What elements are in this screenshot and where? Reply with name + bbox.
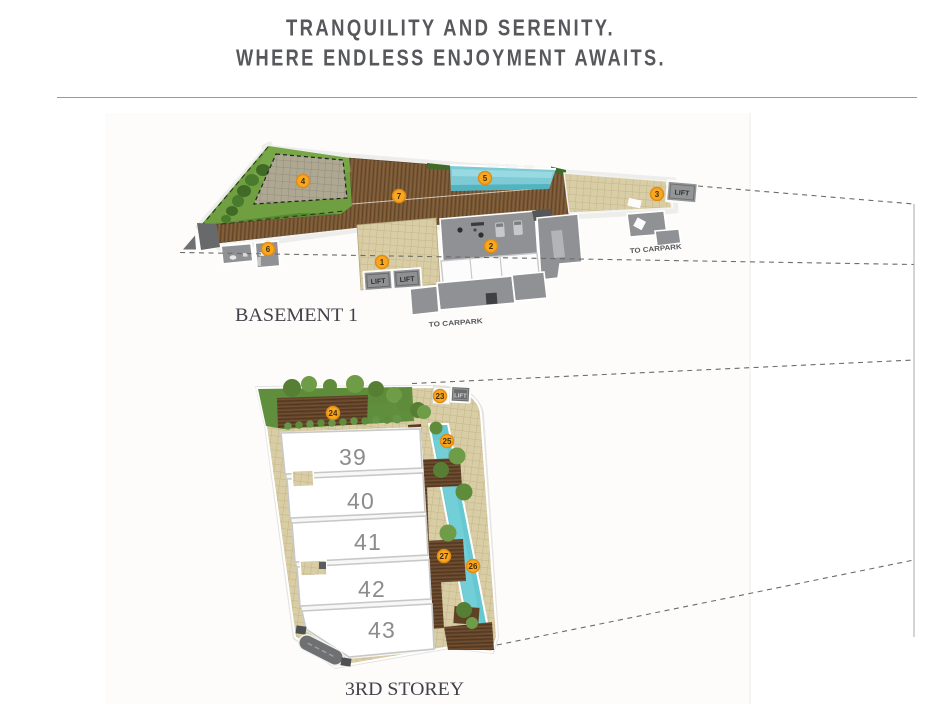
svg-text:LIFT: LIFT <box>371 278 387 286</box>
svg-text:1: 1 <box>380 258 385 267</box>
svg-text:WHERE ENDLESS ENJOYMENT AWAITS: WHERE ENDLESS ENJOYMENT AWAITS. <box>236 45 666 71</box>
svg-text:TRANQUILITY AND SERENITY.: TRANQUILITY AND SERENITY. <box>286 15 615 41</box>
svg-text:42: 42 <box>358 576 386 602</box>
svg-text:27: 27 <box>440 552 449 561</box>
svg-text:43: 43 <box>368 617 396 643</box>
svg-text:24: 24 <box>329 409 338 418</box>
svg-text:7: 7 <box>397 192 402 201</box>
svg-text:3: 3 <box>655 190 660 199</box>
svg-text:4: 4 <box>301 177 306 186</box>
svg-text:26: 26 <box>469 562 478 571</box>
svg-text:23: 23 <box>436 392 445 401</box>
svg-text:3RD STOREY: 3RD STOREY <box>345 679 464 700</box>
svg-text:BASEMENT 1: BASEMENT 1 <box>235 305 358 326</box>
svg-text:41: 41 <box>354 529 382 555</box>
svg-text:LIFT: LIFT <box>674 189 690 197</box>
svg-text:6: 6 <box>266 245 271 254</box>
svg-text:2: 2 <box>489 242 494 251</box>
svg-text:25: 25 <box>443 437 452 446</box>
svg-text:40: 40 <box>347 488 375 514</box>
svg-text:LIFT: LIFT <box>400 276 416 284</box>
svg-text:5: 5 <box>483 174 488 183</box>
svg-text:39: 39 <box>339 444 367 470</box>
svg-text:LIFT: LIFT <box>454 393 467 400</box>
